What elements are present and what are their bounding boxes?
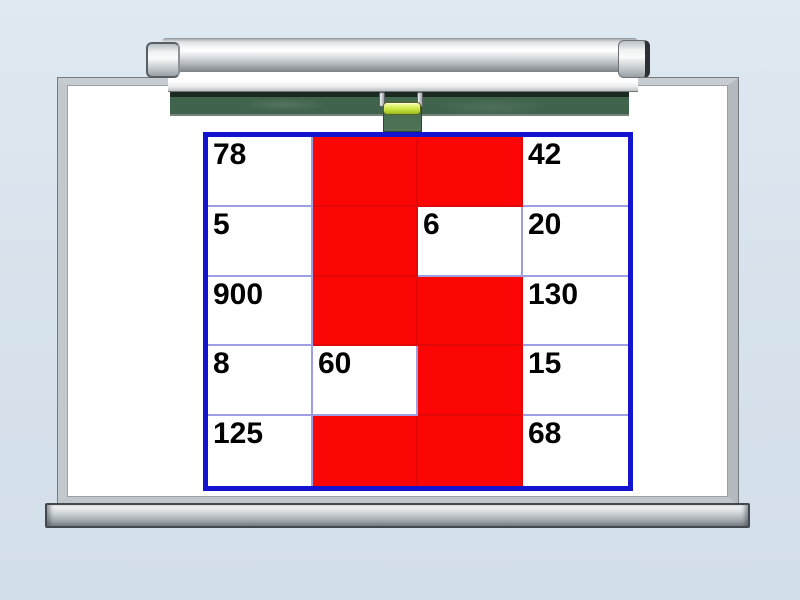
table-cell[interactable]: 42 xyxy=(523,137,628,207)
table-cell[interactable]: 130 xyxy=(523,277,628,347)
table-cell[interactable]: 8 xyxy=(208,346,313,416)
roller-endcap-left xyxy=(146,42,180,78)
marker-tray xyxy=(45,503,750,528)
pull-handle-grip xyxy=(383,102,421,115)
table-cell[interactable] xyxy=(313,277,418,347)
table-cell[interactable]: 5 xyxy=(208,207,313,277)
table-cell[interactable]: 68 xyxy=(523,416,628,486)
table-cell[interactable]: 125 xyxy=(208,416,313,486)
table-cell[interactable]: 900 xyxy=(208,277,313,347)
screen-fabric-band xyxy=(168,70,638,92)
roller-endcap-right xyxy=(618,40,650,78)
table-cell[interactable] xyxy=(418,277,523,347)
slide-background: 78 42 5 6 20 900 130 8 60 15 125 68 xyxy=(0,0,800,600)
number-grid: 78 42 5 6 20 900 130 8 60 15 125 68 xyxy=(203,132,633,491)
table-cell[interactable] xyxy=(313,207,418,277)
table-cell[interactable]: 60 xyxy=(313,346,418,416)
table-cell[interactable] xyxy=(418,416,523,486)
table-cell[interactable] xyxy=(313,416,418,486)
table-cell[interactable] xyxy=(418,137,523,207)
screen-roller xyxy=(162,38,638,72)
table-cell[interactable]: 78 xyxy=(208,137,313,207)
table-cell[interactable]: 15 xyxy=(523,346,628,416)
table-cell[interactable] xyxy=(418,346,523,416)
table-cell[interactable] xyxy=(313,137,418,207)
table-cell[interactable]: 6 xyxy=(418,207,523,277)
table-cell[interactable]: 20 xyxy=(523,207,628,277)
